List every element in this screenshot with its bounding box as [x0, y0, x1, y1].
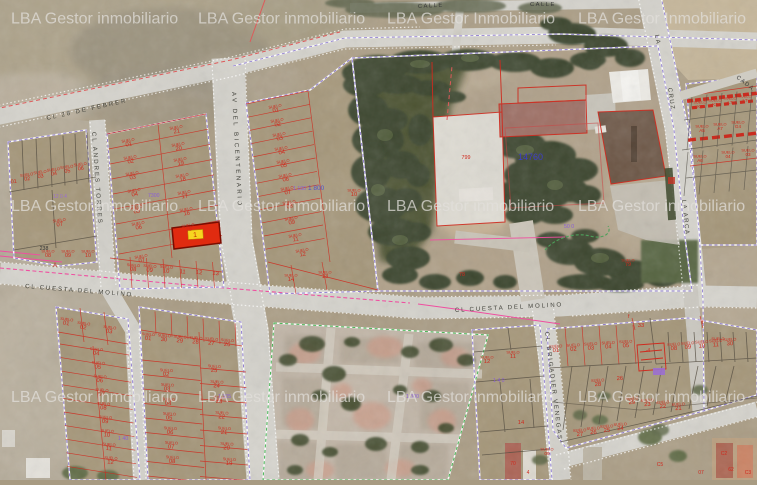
svg-text:CALLE: CALLE: [530, 2, 556, 8]
svg-text:14: 14: [518, 420, 525, 426]
svg-text:26: 26: [617, 376, 624, 382]
svg-text:21: 21: [675, 406, 682, 412]
svg-text:21: 21: [221, 430, 228, 436]
svg-text:01: 01: [10, 179, 17, 186]
svg-text:SUELO: SUELO: [540, 447, 553, 452]
svg-text:78: 78: [459, 272, 465, 278]
svg-text:10: 10: [103, 432, 110, 439]
svg-text:06: 06: [96, 378, 103, 385]
svg-text:LBA Gestor inmobiliario: LBA Gestor inmobiliario: [387, 198, 554, 215]
svg-text:LBA Gestor inmobiliario: LBA Gestor inmobiliario: [198, 198, 365, 215]
svg-text:12: 12: [299, 252, 306, 259]
svg-text:13: 13: [322, 274, 328, 280]
svg-text:25: 25: [211, 368, 218, 374]
svg-text:K3: K3: [697, 104, 703, 109]
svg-text:06: 06: [167, 430, 174, 436]
svg-text:1 40: 1 40: [118, 436, 128, 442]
svg-text:70: 70: [510, 461, 516, 467]
svg-text:03: 03: [129, 175, 136, 182]
svg-text:10: 10: [85, 253, 91, 259]
svg-text:LBA Gestor Inmobiliario: LBA Gestor Inmobiliario: [578, 11, 746, 28]
svg-text:01: 01: [272, 108, 279, 115]
svg-text:LBA Gestor inmobiliario: LBA Gestor inmobiliario: [198, 389, 365, 406]
svg-text:05: 05: [623, 343, 630, 349]
svg-text:29: 29: [176, 338, 183, 345]
svg-text:1 800: 1 800: [308, 185, 325, 192]
svg-text:799: 799: [462, 155, 471, 161]
svg-text:06: 06: [77, 166, 84, 173]
svg-text:10: 10: [699, 343, 706, 349]
svg-text:16: 16: [183, 211, 190, 218]
svg-text:28: 28: [595, 382, 602, 388]
svg-text:04: 04: [51, 171, 58, 178]
svg-text:11: 11: [510, 354, 516, 360]
svg-text:G4: G4: [735, 124, 742, 129]
svg-text:02: 02: [24, 176, 31, 183]
svg-text:09: 09: [288, 220, 295, 227]
svg-text:09: 09: [544, 451, 550, 457]
svg-text:LBA Gestor inmobiliario: LBA Gestor inmobiliario: [387, 389, 554, 406]
svg-text:L7: L7: [727, 100, 733, 105]
svg-text:A6: A6: [697, 158, 703, 163]
svg-text:14: 14: [288, 277, 295, 283]
svg-text:27: 27: [208, 341, 215, 348]
svg-text:33: 33: [638, 323, 644, 329]
svg-text:02: 02: [127, 159, 134, 166]
svg-text:LBA Gestor inmobiliario: LBA Gestor inmobiliario: [578, 198, 745, 215]
svg-text:07: 07: [56, 222, 63, 229]
svg-text:01: 01: [145, 336, 152, 343]
svg-text:08: 08: [100, 405, 107, 412]
svg-text:05: 05: [64, 168, 71, 175]
svg-text:24: 24: [617, 426, 625, 432]
svg-text:27: 27: [577, 432, 584, 438]
svg-text:03: 03: [276, 136, 283, 143]
svg-text:15: 15: [185, 227, 192, 234]
svg-text:-4: -4: [646, 348, 651, 354]
svg-text:50 0: 50 0: [564, 224, 574, 230]
svg-text:12: 12: [484, 359, 490, 365]
svg-text:A7: A7: [717, 126, 723, 131]
svg-text:05: 05: [280, 163, 287, 170]
svg-text:SUELO: SUELO: [711, 336, 724, 341]
svg-text:08: 08: [130, 267, 137, 274]
svg-text:06: 06: [135, 225, 142, 232]
svg-text:10: 10: [163, 268, 170, 275]
svg-text:LBA Gestor Inmobiliario: LBA Gestor Inmobiliario: [387, 11, 555, 28]
svg-text:30: 30: [160, 337, 167, 344]
svg-text:26: 26: [224, 342, 231, 349]
svg-text:79: 79: [625, 262, 631, 268]
svg-text:11: 11: [179, 269, 186, 276]
svg-text:22: 22: [218, 414, 225, 420]
svg-text:14760: 14760: [518, 152, 543, 162]
svg-text:26: 26: [590, 430, 597, 436]
svg-text:01: 01: [63, 321, 70, 328]
svg-text:19: 19: [226, 461, 233, 467]
svg-text:07: 07: [698, 470, 704, 476]
svg-text:03: 03: [106, 329, 113, 336]
svg-text:05: 05: [94, 364, 101, 371]
svg-text:LBA Gestor inmobiliario: LBA Gestor inmobiliario: [11, 198, 178, 215]
svg-text:02: 02: [163, 372, 170, 378]
svg-text:19: 19: [177, 161, 184, 168]
svg-text:C2: C2: [721, 451, 728, 457]
svg-text:09: 09: [65, 253, 71, 259]
svg-text:62: 62: [728, 467, 734, 473]
svg-text:08: 08: [671, 346, 678, 352]
svg-text:20: 20: [175, 146, 182, 153]
svg-text:A: A: [53, 263, 57, 269]
svg-text:C5: C5: [657, 462, 664, 468]
svg-text:02: 02: [274, 122, 281, 129]
svg-text:09: 09: [685, 345, 692, 351]
svg-text:11: 11: [292, 237, 299, 244]
svg-text:238: 238: [40, 246, 49, 252]
svg-text:LBA Gestor inmobiliario: LBA Gestor inmobiliario: [11, 389, 178, 406]
svg-text:01: 01: [125, 142, 132, 149]
svg-text:08: 08: [45, 253, 51, 259]
svg-text:04: 04: [725, 154, 731, 159]
svg-text:L7: L7: [742, 98, 748, 103]
svg-text:03: 03: [745, 152, 751, 157]
svg-text:11: 11: [713, 342, 719, 348]
svg-text:25: 25: [604, 428, 611, 434]
svg-text:09: 09: [146, 268, 153, 275]
svg-text:07: 07: [168, 444, 175, 450]
svg-text:04: 04: [605, 344, 613, 350]
svg-text:02: 02: [80, 325, 87, 332]
svg-text:12: 12: [107, 460, 114, 467]
svg-text:21: 21: [173, 129, 180, 136]
svg-text:K3: K3: [712, 102, 718, 107]
svg-text:03: 03: [37, 173, 44, 180]
svg-text:13: 13: [212, 271, 219, 278]
svg-text:17: 17: [181, 194, 188, 201]
svg-text:C3: C3: [745, 470, 752, 476]
svg-text:07: 07: [284, 190, 291, 197]
svg-text:1: 1: [193, 232, 197, 239]
svg-text:LBA Gestor inmobiliario: LBA Gestor inmobiliario: [198, 11, 365, 28]
svg-text:03: 03: [588, 345, 595, 351]
svg-text:LBA Gestor inmobiliario: LBA Gestor inmobiliario: [578, 389, 745, 406]
svg-text:12: 12: [196, 270, 203, 277]
svg-text:11: 11: [105, 446, 112, 453]
svg-text:02: 02: [570, 347, 577, 353]
svg-text:09: 09: [102, 419, 109, 426]
svg-text:LBA Gestor inmobiliario: LBA Gestor inmobiliario: [11, 11, 178, 28]
svg-text:20: 20: [223, 445, 230, 451]
svg-text:08: 08: [169, 459, 176, 465]
svg-text:30: 30: [727, 341, 734, 347]
svg-text:28: 28: [192, 339, 199, 346]
svg-text:A5: A5: [699, 128, 705, 133]
svg-text:1 4 0: 1 4 0: [493, 378, 505, 384]
svg-text:1 100: 1 100: [293, 186, 306, 192]
svg-text:18: 18: [179, 177, 186, 184]
svg-text:05: 05: [166, 415, 173, 421]
svg-text:06: 06: [282, 177, 289, 184]
svg-text:4: 4: [527, 470, 530, 476]
